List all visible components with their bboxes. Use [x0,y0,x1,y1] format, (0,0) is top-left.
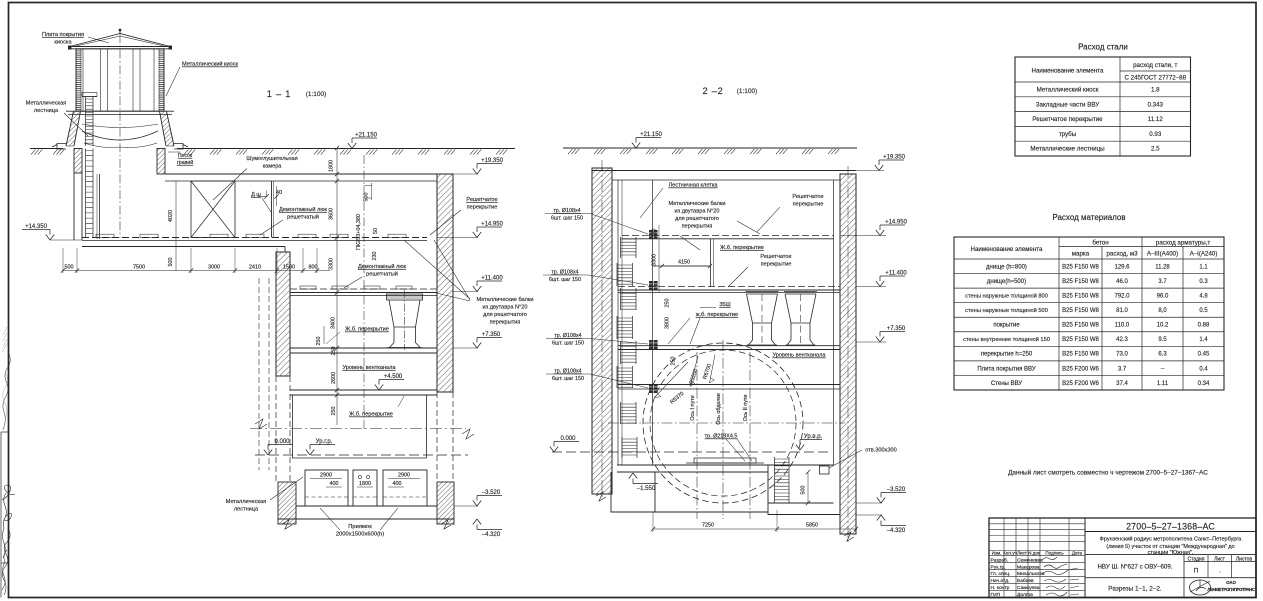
svg-text:киоска: киоска [54,40,72,46]
svg-text:Решетчатое: Решетчатое [760,254,791,260]
svg-text:Расход материалов: Расход материалов [1052,213,1125,222]
svg-text:ПК253+04,380: ПК253+04,380 [356,214,362,250]
svg-text:для решетчатого: для решетчатого [483,312,527,318]
svg-text:Подпись: Подпись [1045,550,1064,555]
svg-text:N док: N док [1028,550,1041,555]
svg-text:2700–5–27–1368–АС: 2700–5–27–1368–АС [1126,522,1215,532]
svg-text:Наименование элемента: Наименование элемента [1031,68,1104,75]
svg-text:Решетчатое: Решетчатое [466,197,497,203]
svg-text:Решетчатое перекрытие: Решетчатое перекрытие [1032,116,1103,123]
svg-text:Нач.отд.: Нач.отд. [991,578,1010,584]
svg-text:0.343: 0.343 [1148,101,1164,108]
svg-text:96.0: 96.0 [1157,293,1169,299]
svg-text:ж.б. перекрытие: ж.б. перекрытие [696,312,738,318]
svg-text:Бабаев: Бабаев [1017,578,1034,584]
svg-text:Разраб.: Разраб. [991,557,1009,563]
svg-text:+21.150: +21.150 [355,133,378,139]
svg-text:отв.300х300: отв.300х300 [865,448,897,454]
svg-text:В25 F150 W8: В25 F150 W8 [1062,264,1099,270]
svg-text:трубы: трубы [1059,131,1077,138]
svg-text:+14.350: +14.350 [25,224,48,230]
svg-text:9.5: 9.5 [1158,337,1167,343]
svg-text:Металлическая: Металлическая [26,101,66,107]
svg-text:Металлические лестницы: Металлические лестницы [1030,146,1105,153]
svg-text:81.0: 81.0 [1116,308,1128,314]
svg-text:+11.400: +11.400 [481,276,503,282]
svg-text:Лестничная клетка: Лестничная клетка [669,183,719,189]
svg-text:4150: 4150 [678,260,690,266]
svg-text:Дата: Дата [1072,550,1083,555]
svg-text:4.8: 4.8 [1199,293,1208,299]
svg-text:Приямок: Приямок [348,524,372,530]
svg-text:камера: камера [263,164,283,170]
svg-text:0.93: 0.93 [1149,131,1162,138]
svg-text:40: 40 [276,190,282,196]
svg-text:129.6: 129.6 [1114,264,1130,270]
svg-text:10.2: 10.2 [1157,323,1169,329]
svg-text:Семеневва: Семеневва [1017,557,1043,563]
svg-text:Кол.уч: Кол.уч [1003,550,1017,555]
svg-text:500: 500 [364,193,370,202]
svg-text:500: 500 [801,486,807,495]
svg-text:перекрытие: перекрытие [793,202,824,208]
svg-text:0.88: 0.88 [1198,323,1210,329]
svg-text:500: 500 [168,258,174,267]
svg-text:Листов: Листов [1236,556,1253,562]
svg-text:7500: 7500 [133,265,145,271]
svg-text:Ж.б. перекрытие: Ж.б. перекрытие [349,412,393,418]
svg-text:П: П [1194,568,1199,575]
svg-text:+7.350: +7.350 [887,326,906,332]
svg-text:1800: 1800 [359,481,371,487]
svg-text:2600: 2600 [331,372,337,384]
svg-text:решетчатый: решетчатый [366,271,398,278]
svg-text:В25 F200 W6: В25 F200 W6 [1062,366,1099,372]
svg-text:(1:100): (1:100) [737,88,758,95]
svg-text:из двутавра N°20: из двутавра N°20 [674,209,719,215]
svg-text:2900: 2900 [398,473,410,479]
svg-text:Ур.г.р.: Ур.г.р. [316,439,333,445]
svg-text:покрытие: покрытие [993,323,1020,329]
svg-text:5850: 5850 [806,523,818,529]
svg-text:0.45: 0.45 [1198,352,1210,358]
svg-text:3300: 3300 [652,254,658,266]
svg-text:тр. Ø108х4: тр. Ø108х4 [553,208,580,214]
svg-text:250: 250 [652,229,658,238]
svg-text:0.3: 0.3 [1199,279,1208,285]
svg-text:перекрытия: перекрытия [682,224,713,230]
svg-text:6.3: 6.3 [1158,352,1167,358]
svg-text:1.11: 1.11 [1157,381,1169,387]
svg-text:В25 F150 W8: В25 F150 W8 [1062,352,1099,358]
svg-text:днище (h=800): днище (h=800) [986,264,1027,270]
svg-text:Решетчатое: Решетчатое [792,194,823,200]
svg-text:250: 250 [665,299,671,308]
svg-text:для решетчатого: для решетчатого [675,216,719,222]
svg-text:792.0: 792.0 [1114,293,1130,299]
svg-text:11.28: 11.28 [1155,264,1170,270]
svg-text:3300: 3300 [329,258,335,270]
svg-text:Демонтажный люк: Демонтажный люк [279,206,328,213]
svg-text:Ж.б. перекрытие: Ж.б. перекрытие [345,327,389,333]
svg-text:Данный лист смотреть совмес: Данный лист смотреть совместно ч чертежо… [1008,469,1208,477]
svg-text:+21.150: +21.150 [640,132,663,138]
svg-text:3.7: 3.7 [1158,279,1167,285]
svg-text:2.5: 2.5 [1151,146,1160,153]
svg-text:4020: 4020 [168,210,174,222]
svg-text:В25 F150 W8: В25 F150 W8 [1062,337,1099,343]
svg-text:+14.950: +14.950 [885,220,908,226]
svg-text:500: 500 [65,265,74,271]
svg-text:6шт. шаг 150: 6шт. шаг 150 [552,341,584,347]
svg-text:перекрытие: перекрытие [467,205,498,211]
svg-text:7250: 7250 [702,523,714,529]
svg-text:В25 F150 W8: В25 F150 W8 [1062,279,1099,285]
svg-text:+19.350: +19.350 [883,155,906,161]
svg-text:В25 F150 W8: В25 F150 W8 [1062,293,1099,299]
svg-text:46.0: 46.0 [1116,279,1128,285]
svg-text:днище(h=500): днище(h=500) [987,279,1026,285]
svg-text:Уровень вентканала: Уровень вентканала [342,365,396,371]
svg-text:3800: 3800 [665,317,671,329]
svg-text:Стадия: Стадия [1187,556,1204,562]
svg-text:+19.350: +19.350 [481,158,504,164]
svg-text:Гл. спец.: Гл. спец. [991,571,1011,577]
svg-text:из двутавра N°20: из двутавра N°20 [482,305,527,311]
svg-text:Ж.б. перекрытие: Ж.б. перекрытие [720,245,764,251]
svg-text:Наименование элемента: Наименование элемента [970,246,1043,253]
svg-text:6шт. шаг 150: 6шт. шаг 150 [549,277,581,283]
svg-text:(1:100): (1:100) [306,91,327,98]
svg-text:расход арматуры,т: расход арматуры,т [1156,240,1211,247]
svg-text:73.0: 73.0 [1116,352,1128,358]
svg-text:Расход стали: Расход стали [1078,43,1128,52]
svg-text:3400: 3400 [331,317,337,329]
svg-text:расход, м3: расход, м3 [1106,251,1138,258]
svg-text:3.7: 3.7 [1118,366,1127,372]
svg-text:2900: 2900 [320,473,332,479]
svg-text:+4.500: +4.500 [384,374,403,380]
svg-text:расход стали, т: расход стали, т [1133,62,1177,69]
svg-text:Д ш: Д ш [251,192,261,198]
svg-text:8,0: 8,0 [1158,308,1167,314]
svg-text:Лист: Лист [1214,556,1226,562]
svg-text:стены наружные толщиной 800: стены наружные толщиной 800 [965,292,1048,299]
svg-text:тр. Ø108х4: тр. Ø108х4 [554,369,581,375]
svg-text:250: 250 [316,337,322,346]
svg-text:станции ”Южная”.: станции ”Южная”. [1148,550,1194,556]
svg-text:В25 F200 W6: В25 F200 W6 [1062,381,1099,387]
svg-text:–3.520: –3.520 [887,487,906,493]
svg-text:тр. Ø108х4: тр. Ø108х4 [551,270,578,276]
svg-text:Стены ВВУ: Стены ВВУ [991,381,1022,387]
svg-text:+14.950: +14.950 [481,222,504,228]
svg-text:Фрунзенский радиус метрополи: Фрунзенский радиус метрополитена Санкт–П… [1100,536,1243,543]
svg-text:Макарова: Макарова [1017,564,1040,570]
svg-text:тр. Ø219Х4.5: тр. Ø219Х4.5 [705,434,738,440]
svg-text:Ось обделки: Ось обделки [716,393,722,425]
svg-text:Долгов: Долгов [1017,592,1033,598]
svg-text:Рук.гр.: Рук.гр. [991,564,1006,570]
svg-text:250: 250 [331,407,337,416]
svg-text:Металлический киоск: Металлический киоск [1037,87,1099,94]
svg-text:Металлические балки: Металлические балки [477,297,534,303]
svg-text:–4.320: –4.320 [482,532,501,538]
svg-text:0.4: 0.4 [1199,366,1208,372]
svg-text:стены наружные толщиной 500: стены наружные толщиной 500 [965,307,1048,314]
svg-text:0.000: 0.000 [560,436,576,442]
svg-text:перекрытие: перекрытие [761,262,792,268]
svg-text:А–III(А400): А–III(А400) [1147,251,1178,258]
svg-text:Изм.: Изм. [992,550,1002,555]
svg-text:В25 F150 W8: В25 F150 W8 [1062,323,1099,329]
svg-text:1.4: 1.4 [1199,337,1208,343]
svg-text:Демонтажный люк: Демонтажный люк [358,263,407,270]
svg-text:0.000: 0.000 [274,439,290,445]
svg-text:1.1: 1.1 [1199,264,1208,270]
svg-text:2000х1500х600(h): 2000х1500х600(h) [336,532,384,538]
svg-text:Металлические балки: Металлические балки [669,201,726,207]
svg-text:6шт. шаг 150: 6шт. шаг 150 [552,376,584,382]
svg-text:Плита покрытия ВВУ: Плита покрытия ВВУ [977,366,1036,372]
svg-text:Уровень вентканала: Уровень вентканала [772,353,826,359]
svg-text:50: 50 [373,228,379,234]
svg-text:1.8: 1.8 [1151,87,1160,94]
svg-text:400: 400 [393,481,402,487]
svg-text:1500: 1500 [283,265,295,271]
svg-text:250: 250 [671,357,677,366]
svg-text:35Ш: 35Ш [719,302,730,308]
svg-text:6шт. шаг 150: 6шт. шаг 150 [551,216,583,222]
svg-text:стены внутренние толщиной 150: стены внутренние толщиной 150 [963,336,1050,343]
svg-text:Плита покрытия: Плита покрытия [42,32,84,38]
svg-text:Лист: Лист [1017,550,1028,555]
svg-text:А–I(А240): А–I(А240) [1190,251,1218,258]
svg-text:–1.550: –1.550 [637,486,656,492]
svg-text:250: 250 [331,347,337,356]
svg-text:ЛЕНМЕТРОГИПРОТРАНС: ЛЕНМЕТРОГИПРОТРАНС [1207,587,1256,592]
svg-text:–4.320: –4.320 [887,528,906,534]
svg-text:Металлический киоск: Металлический киоск [182,61,238,68]
svg-text:С 245ГОСТ 27772–88: С 245ГОСТ 27772–88 [1124,75,1186,82]
svg-text:лестница: лестница [34,108,59,114]
svg-text:400: 400 [330,481,339,487]
svg-text:42.3: 42.3 [1116,337,1128,343]
svg-text:3000: 3000 [208,265,220,271]
svg-text:110.0: 110.0 [1115,323,1130,329]
svg-text:Ось I пути: Ось I пути [690,395,696,420]
svg-text:Ось II пути: Ось II пути [743,395,749,422]
svg-text:–3.520: –3.520 [482,490,501,496]
svg-text:0.5: 0.5 [1199,308,1208,314]
svg-text:Разрезы 1–1, 2–2.: Разрезы 1–1, 2–2. [1108,586,1162,593]
svg-text:+11.400: +11.400 [885,271,907,277]
svg-text:2 –2: 2 –2 [702,86,723,96]
svg-text:Металлическая: Металлическая [226,499,266,505]
svg-text:3600: 3600 [329,208,335,220]
svg-text:решетчатый: решетчатый [287,214,319,221]
svg-text:Шумоглушительная: Шумоглушительная [246,156,297,162]
svg-text:Закладные части ВВУ: Закладные части ВВУ [1036,101,1099,108]
svg-text:В25 F150 W8: В25 F150 W8 [1062,308,1099,314]
svg-text:230: 230 [372,252,378,261]
svg-text:+7.350: +7.350 [482,332,501,338]
svg-text:НВУ Ш. N°627 с ОВУ–609.: НВУ Ш. N°627 с ОВУ–609. [1097,564,1172,571]
svg-text:1800: 1800 [329,160,335,172]
svg-text:Ур.в.р.: Ур.в.р. [804,434,823,440]
svg-text:гравий: гравий [177,159,193,166]
svg-text:ОАО: ОАО [1226,580,1236,585]
svg-text:11.12: 11.12 [1148,116,1164,123]
svg-text:перекрытия: перекрытия [490,320,521,326]
svg-text:0.34: 0.34 [1198,381,1210,387]
svg-text:Н. контр: Н. контр [991,585,1010,591]
svg-text:Песок: Песок [178,153,193,159]
svg-text:800: 800 [309,265,318,271]
svg-text:тр. Ø108х4: тр. Ø108х4 [554,333,581,339]
svg-text:перекрытие h=250: перекрытие h=250 [981,352,1033,358]
svg-text:37.4: 37.4 [1116,381,1128,387]
svg-text:2410: 2410 [249,265,261,271]
svg-text:марка: марка [1072,251,1090,258]
svg-text:бетон: бетон [1092,240,1108,247]
svg-text:ГИП: ГИП [991,592,1001,598]
svg-text:лестница: лестница [234,507,259,513]
svg-text:Самсуева: Самсуева [1017,585,1040,591]
svg-text:Михалькова: Михалькова [1017,571,1045,577]
svg-text:1 – 1: 1 – 1 [267,89,291,99]
